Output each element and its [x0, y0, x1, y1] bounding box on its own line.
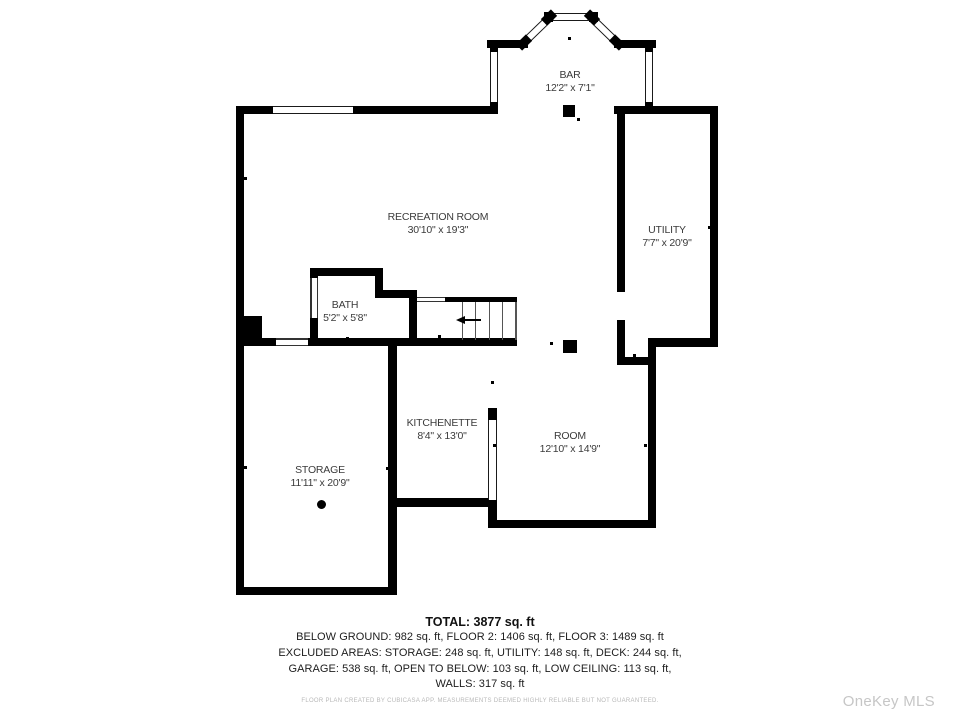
wall-tick [317, 589, 320, 592]
wall-tick [619, 226, 622, 229]
summary-line: GARAGE: 538 sq. ft, OPEN TO BELOW: 103 s… [0, 662, 960, 678]
room-label-utility: UTILITY 7'7" x 20'9" [642, 224, 691, 249]
room-name: RECREATION ROOM [388, 211, 489, 224]
wall-tick [493, 444, 496, 447]
stairs-opening-line [417, 301, 445, 303]
wall-tick [708, 226, 711, 229]
wall-exterior-left [236, 106, 244, 595]
room-name: UTILITY [642, 224, 691, 237]
room-label-storage: STORAGE 11'11" x 20'9" [290, 464, 349, 489]
stair-tread [489, 302, 490, 340]
window-bar-left [490, 52, 498, 102]
wall-utility-bottom [648, 338, 718, 347]
wall-room-bottom [488, 520, 656, 528]
wall-tick [244, 177, 247, 180]
bay-window-cap [544, 12, 553, 22]
bay-window-cap [589, 12, 598, 22]
wall-bath-left-upper [310, 268, 318, 278]
bath-door-line [317, 278, 319, 318]
room-dims: 5'2" x 5'8" [323, 312, 367, 325]
wall-tick [244, 466, 247, 469]
wall-tick [346, 337, 349, 340]
floor-plan-page: BAR 12'2" x 7'1" RECREATION ROOM 30'10" … [0, 0, 960, 720]
wall-tick [345, 269, 348, 272]
bar-post [563, 105, 575, 117]
wall-bath-left-lower [310, 318, 318, 342]
wall-tick [491, 381, 494, 384]
bay-corner-cap [609, 34, 625, 50]
wall-tick [438, 335, 441, 338]
stairs-arrow-line [463, 319, 481, 321]
wall-stairs-top [445, 297, 517, 302]
wall-kitchenette-bottom [388, 498, 497, 507]
room-label-kitchenette: KITCHENETTE 8'4" x 13'0" [407, 417, 478, 442]
wall-divider-cap [488, 408, 497, 420]
room-label-bar: BAR 12'2" x 7'1" [545, 69, 594, 94]
wall-utility-cap [617, 357, 652, 365]
doorway-threshold-line [276, 338, 308, 340]
wall-utility-left-upper [617, 114, 625, 292]
wall-tick [644, 444, 647, 447]
room-name: BAR [545, 69, 594, 82]
wall-exterior-right [710, 106, 718, 347]
room-name: KITCHENETTE [407, 417, 478, 430]
window-top-wall [273, 106, 353, 114]
watermark-onekey-mls: OneKey MLS [843, 693, 935, 710]
wall-storage-right [388, 338, 397, 595]
stairs-arrow-icon [456, 316, 465, 324]
room-name: BATH [323, 299, 367, 312]
room-dims: 11'11" x 20'9" [290, 477, 349, 490]
room-label-recreation: RECREATION ROOM 30'10" x 19'3" [388, 211, 489, 236]
wall-tick [633, 354, 636, 357]
wall-stair-landing-left [409, 290, 417, 342]
wall-room-right [648, 338, 656, 528]
wall-left-chimney-block [236, 316, 262, 340]
bath-door-line [310, 278, 312, 318]
wall-mid-left [236, 338, 276, 346]
room-name: ROOM [540, 430, 601, 443]
room-dims: 12'2" x 7'1" [545, 82, 594, 95]
area-summary: TOTAL: 3877 sq. ft BELOW GROUND: 982 sq.… [0, 614, 960, 693]
summary-line: BELOW GROUND: 982 sq. ft, FLOOR 2: 1406 … [0, 630, 960, 646]
room-dims: 30'10" x 19'3" [388, 224, 489, 237]
stairs-opening-line [417, 297, 445, 299]
kitchenette-counter-divider [488, 420, 497, 500]
room-label-room: ROOM 12'10" x 14'9" [540, 430, 601, 455]
room-column [563, 340, 577, 353]
room-dims: 7'7" x 20'9" [642, 237, 691, 250]
window-bar-right [645, 52, 653, 102]
room-label-bath: BATH 5'2" x 5'8" [323, 299, 367, 324]
room-dims: 8'4" x 13'0" [407, 430, 478, 443]
wall-tick [577, 118, 580, 121]
wall-tick [550, 342, 553, 345]
wall-tick [386, 467, 389, 470]
doorway-threshold-line [276, 345, 308, 347]
summary-line: WALLS: 317 sq. ft [0, 677, 960, 693]
room-name: STORAGE [290, 464, 349, 477]
stair-edge [515, 302, 517, 340]
disclaimer-text: FLOOR PLAN CREATED BY CUBICASA APP. MEAS… [0, 698, 960, 704]
stair-tread [475, 302, 476, 340]
total-area-text: TOTAL: 3877 sq. ft [0, 614, 960, 630]
column-dot [317, 500, 326, 509]
summary-line: EXCLUDED AREAS: STORAGE: 248 sq. ft, UTI… [0, 646, 960, 662]
stair-tread [502, 302, 503, 340]
wall-top-right [614, 106, 718, 114]
room-dims: 12'10" x 14'9" [540, 443, 601, 456]
wall-tick [568, 37, 571, 40]
